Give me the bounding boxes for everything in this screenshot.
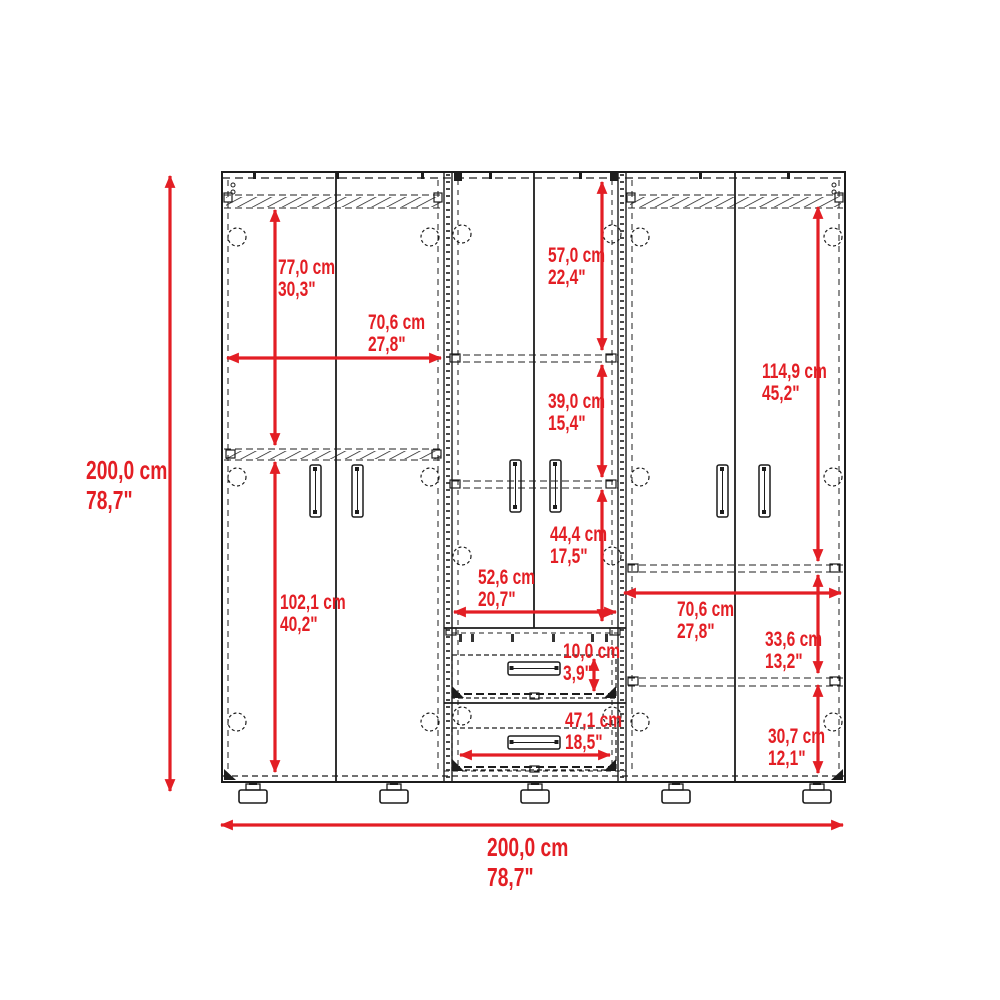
foot: [380, 781, 408, 803]
dim-inch-value: 20,7": [478, 589, 535, 611]
dim-middle-width-label: 52,6 cm 20,7": [478, 567, 535, 611]
dim-left-width-label: 70,6 cm 27,8": [368, 312, 425, 356]
dim-inch-value: 13,2": [765, 651, 822, 673]
dim-inch-value: 27,8": [677, 621, 734, 643]
dim-right-lower-height-label: 30,7 cm 12,1": [768, 726, 825, 770]
foot: [239, 781, 267, 803]
dim-cm-value: 33,6 cm: [765, 629, 822, 651]
dim-inch-value: 15,4": [548, 413, 605, 435]
dim-overall-height-label: 200,0 cm 78,7": [86, 455, 167, 515]
dim-overall-width-label: 200,0 cm 78,7": [487, 832, 568, 892]
dim-left-upper-height-label: 77,0 cm 30,3": [278, 257, 335, 301]
dim-cm-value: 52,6 cm: [478, 567, 535, 589]
dim-cm-value: 44,4 cm: [550, 524, 607, 546]
dim-cm-value: 70,6 cm: [677, 599, 734, 621]
dim-drawer-height-label: 10,0 cm 3,9": [563, 641, 620, 685]
dimension-arrows: [170, 176, 843, 825]
dim-right-middle-height-label: 33,6 cm 13,2": [765, 629, 822, 673]
foot: [803, 781, 831, 803]
dim-cm-value: 114,9 cm: [762, 361, 827, 383]
dim-inch-value: 78,7": [86, 485, 167, 515]
dim-inch-value: 22,4": [548, 267, 605, 289]
dim-cm-value: 57,0 cm: [548, 245, 605, 267]
furniture-dimension-diagram: 200,0 cm 78,7" 200,0 cm 78,7" 77,0 cm 30…: [0, 0, 1000, 1000]
dim-cm-value: 10,0 cm: [563, 641, 620, 663]
middle-door-handles: [510, 460, 561, 512]
dim-inch-value: 18,5": [565, 732, 622, 754]
dim-cm-value: 70,6 cm: [368, 312, 425, 334]
dim-cm-value: 77,0 cm: [278, 257, 335, 279]
dim-middle-lower-height-label: 44,4 cm 17,5": [550, 524, 607, 568]
dim-middle-top-height-label: 57,0 cm 22,4": [548, 245, 605, 289]
dim-cm-value: 102,1 cm: [280, 592, 346, 614]
dim-inch-value: 3,9": [563, 663, 620, 685]
dim-inch-value: 27,8": [368, 334, 425, 356]
dim-cm-value: 200,0 cm: [86, 455, 167, 485]
right-door-handles: [717, 465, 770, 517]
dim-cm-value: 30,7 cm: [768, 726, 825, 748]
dim-cm-value: 47,1 cm: [565, 710, 622, 732]
dim-inch-value: 30,3": [278, 279, 335, 301]
dim-inch-value: 78,7": [487, 862, 568, 892]
dim-inch-value: 12,1": [768, 748, 825, 770]
right-section: [627, 172, 843, 782]
dim-inch-value: 45,2": [762, 383, 827, 405]
dim-cm-value: 39,0 cm: [548, 391, 605, 413]
dim-right-upper-height-label: 114,9 cm 45,2": [762, 361, 827, 405]
dim-inch-value: 17,5": [550, 546, 607, 568]
left-hinge-marks: [228, 228, 439, 731]
bottom-corner-marks: [224, 769, 843, 780]
dim-middle-shelf-height-label: 39,0 cm 15,4": [548, 391, 605, 435]
foot: [662, 781, 690, 803]
feet: [239, 781, 831, 803]
dim-cm-value: 200,0 cm: [487, 832, 568, 862]
dim-inch-value: 40,2": [280, 614, 346, 636]
dim-left-lower-height-label: 102,1 cm 40,2": [280, 592, 346, 636]
dim-right-width-label: 70,6 cm 27,8": [677, 599, 734, 643]
dim-drawer-width-label: 47,1 cm 18,5": [565, 710, 622, 754]
foot: [521, 781, 549, 803]
